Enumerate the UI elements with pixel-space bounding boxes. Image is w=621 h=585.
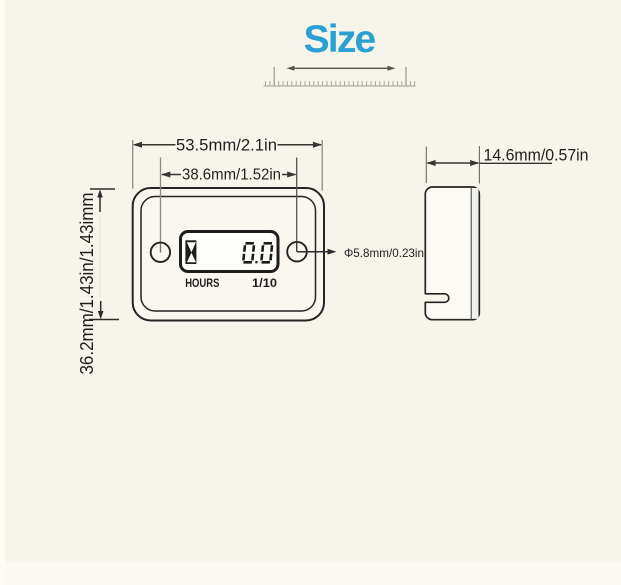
- svg-text:HOURS: HOURS: [185, 278, 219, 290]
- svg-text:Φ5.8mm/0.23in: Φ5.8mm/0.23in: [344, 246, 424, 260]
- svg-text:38.6mm/1.52in: 38.6mm/1.52in: [182, 167, 281, 184]
- svg-text:53.5mm/2.1in: 53.5mm/2.1in: [176, 137, 277, 155]
- svg-text:1/10: 1/10: [252, 278, 277, 290]
- svg-text:36.2mm/1.43in/1.43imm: 36.2mm/1.43in/1.43imm: [76, 193, 97, 375]
- svg-text:14.6mm/0.57in: 14.6mm/0.57in: [484, 146, 589, 165]
- svg-text:Size: Size: [304, 18, 376, 61]
